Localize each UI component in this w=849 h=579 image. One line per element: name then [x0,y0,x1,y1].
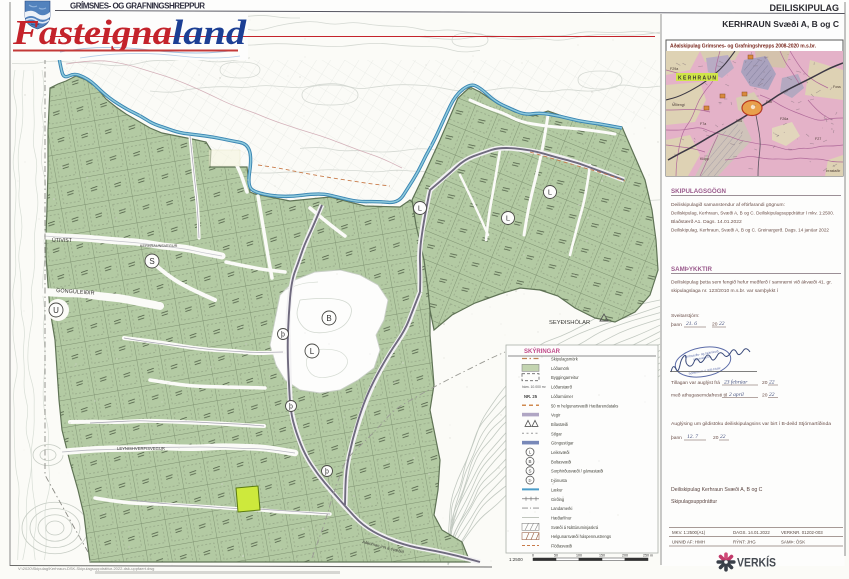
svg-text:VERKNR. 01202-003: VERKNR. 01202-003 [781,530,823,535]
svg-text:DAGS. 14.01.2022: DAGS. 14.01.2022 [733,530,770,535]
svg-text:Klöpp: Klöpp [700,157,709,161]
svg-text:Byggingarreitur: Byggingarreitur [551,375,579,380]
svg-text:Deiliskipulag þetta sem fengið: Deiliskipulag þetta sem fengið hefur með… [671,279,832,286]
svg-text:Lóðarnúmer: Lóðarnúmer [551,394,574,399]
svg-text:MKV. 1:2500(A1): MKV. 1:2500(A1) [672,530,706,535]
svg-text:2 apríl: 2 apríl [729,392,744,398]
svg-text:F8b: F8b [766,100,772,104]
svg-text:Þ: Þ [528,478,531,483]
svg-text:B: B [528,459,531,464]
svg-text:DEILISKIPULAG: DEILISKIPULAG [769,3,839,13]
svg-text:50: 50 [554,554,558,558]
svg-text:SKIPULAGSGÖGN: SKIPULAGSGÖGN [671,188,727,195]
svg-text:F29a: F29a [670,67,678,71]
svg-text:22: 22 [769,392,775,398]
svg-text:20: 20 [762,393,768,399]
svg-text:Deiliskipulag Kerhraun Svæði A: Deiliskipulag Kerhraun Svæði A, B og C [671,486,763,493]
svg-text:RÝNT: JHG: RÝNT: JHG [733,540,756,545]
svg-text:22: 22 [719,321,725,327]
svg-text:Auglýsing um gildistöku deilis: Auglýsing um gildistöku deiliskipulagsin… [671,420,831,427]
svg-text:UNNIÐ AF: HMH: UNNIÐ AF: HMH [672,540,705,545]
svg-text:Sorphirðusvæði / gámastæði: Sorphirðusvæði / gámastæði [551,469,603,474]
svg-text:L: L [548,188,552,197]
svg-text:SKÝRINGAR: SKÝRINGAR [524,348,561,355]
svg-text:U: U [53,306,59,315]
svg-text:þ: þ [281,332,285,339]
svg-text:Lóðamörk: Lóðamörk [551,366,570,371]
svg-text:Deiliskipulag, Kerhraun, Svæði: Deiliskipulag, Kerhraun, Svæði A, B og C… [671,227,829,234]
svg-text:SAMÞYKKTIR: SAMÞYKKTIR [671,266,712,273]
svg-text:Hæðarlínur: Hæðarlínur [551,515,572,520]
svg-text:KERHRAUNSVEGUR: KERHRAUNSVEGUR [140,244,178,248]
svg-text:ÚTIVIST: ÚTIVIST [52,237,73,244]
svg-text:B: B [326,314,331,323]
svg-text:Flóðasvæði: Flóðasvæði [551,544,572,549]
svg-text:KERHRAUN: KERHRAUN [678,76,716,82]
svg-text:Leiksvæði: Leiksvæði [551,450,570,455]
svg-text:21. 6: 21. 6 [686,321,697,327]
svg-text:20: 20 [713,435,719,441]
svg-text:Deiliskipulag, Kerhraun, Svæði: Deiliskipulag, Kerhraun, Svæði A, B og C… [671,210,834,217]
svg-text:Stígar: Stígar [551,431,563,436]
svg-text:Svæði á Náttúruminjaskrá: Svæði á Náttúruminjaskrá [551,525,599,530]
svg-text:Göngustígar: Göngustígar [551,441,574,446]
svg-text:GRÍMSNES- OG GRAFNINGSHREPPUR: GRÍMSNES- OG GRAFNINGSHREPPUR [70,2,205,11]
svg-text:VERKÍS: VERKÍS [737,557,776,570]
svg-text:12. 7: 12. 7 [687,434,698,440]
svg-text:20: 20 [762,380,768,386]
svg-text:Þjónusta: Þjónusta [551,478,568,483]
svg-text:SEYÐISHÓLAR: SEYÐISHÓLAR [549,319,590,326]
svg-text:skipulagslaga nr. 123/2010 m.s: skipulagslaga nr. 123/2010 m.s.br. var s… [671,288,779,294]
svg-text:Skipulagsuppdráttur: Skipulagsuppdráttur [671,499,717,505]
svg-text:þ: þ [289,404,293,411]
svg-text:0: 0 [532,554,534,558]
svg-text:Foss: Foss [833,85,841,89]
svg-text:20: 20 [712,322,718,328]
svg-text:Boltasvæði: Boltasvæði [551,459,571,464]
svg-text:50 m helgunarsvæði Hæðarendata: 50 m helgunarsvæði Hæðarendataks [551,403,618,408]
svg-text:L: L [310,347,315,356]
svg-text:Lóðarstærð: Lóðarstærð [551,385,573,390]
svg-text:250 m: 250 m [643,554,653,558]
svg-text:Lækur: Lækur [551,487,563,492]
svg-text:NR. 25: NR. 25 [524,394,538,399]
svg-text:Tillagan var auglýst frá: Tillagan var auglýst frá [671,380,720,386]
svg-text:Fasteigna: Fasteigna [12,13,172,52]
svg-text:V:\2020\Skipulag\Kerhraun-DSK-: V:\2020\Skipulag\Kerhraun-DSK-Skipulagsu… [18,566,154,571]
svg-text:Helgunarsvæði háspennustrengs: Helgunarsvæði háspennustrengs [551,534,611,539]
svg-text:F7a: F7a [700,122,706,126]
svg-text:23 febrúar: 23 febrúar [724,379,748,386]
svg-text:KERHRAUN Svæði A, B og C: KERHRAUN Svæði A, B og C [722,19,839,29]
svg-text:þ: þ [325,469,329,476]
svg-text:200: 200 [622,554,628,558]
svg-text:Skipulagsmörk: Skipulagsmörk [551,357,579,362]
svg-text:1:2500: 1:2500 [509,557,523,562]
svg-text:SAMÞ: ÓSK: SAMÞ: ÓSK [781,540,805,545]
svg-text:F26a: F26a [780,117,788,121]
svg-text:Vegir: Vegir [551,413,561,418]
svg-text:Landamerki: Landamerki [551,506,572,511]
svg-text:22: 22 [769,380,775,386]
svg-text:hám. 10.000 m²: hám. 10.000 m² [522,385,547,389]
svg-text:Aðalskipulag Grímsnes- og Graf: Aðalskipulag Grímsnes- og Grafningshrepp… [670,43,817,50]
svg-text:þann: þann [671,435,682,441]
svg-text:Sveitarstjórn:: Sveitarstjórn: [671,313,700,319]
svg-text:með athugasemdafresti til: með athugasemdafresti til [671,392,727,399]
svg-text:100: 100 [576,554,582,558]
svg-text:Bílastæði: Bílastæði [551,422,568,427]
svg-text:150: 150 [599,554,605,558]
svg-text:land: land [172,13,247,52]
svg-text:S: S [528,468,531,473]
svg-text:F26: F26 [736,119,742,123]
svg-text:Þrastaðir: Þrastaðir [826,168,841,173]
svg-text:Blaðstærð A1. Dags. 14.01.2022: Blaðstærð A1. Dags. 14.01.2022 [671,218,742,225]
svg-text:L: L [418,204,422,213]
svg-text:S: S [149,257,154,266]
svg-text:L: L [506,214,510,223]
svg-text:Deiliskipulagið samanstendur a: Deiliskipulagið samanstendur af eftirfar… [671,201,785,208]
svg-text:LEYNISHVERFISVEGUR: LEYNISHVERFISVEGUR [117,446,165,451]
svg-text:22: 22 [720,434,726,440]
svg-text:F27: F27 [815,137,821,141]
svg-text:þann: þann [671,322,682,328]
